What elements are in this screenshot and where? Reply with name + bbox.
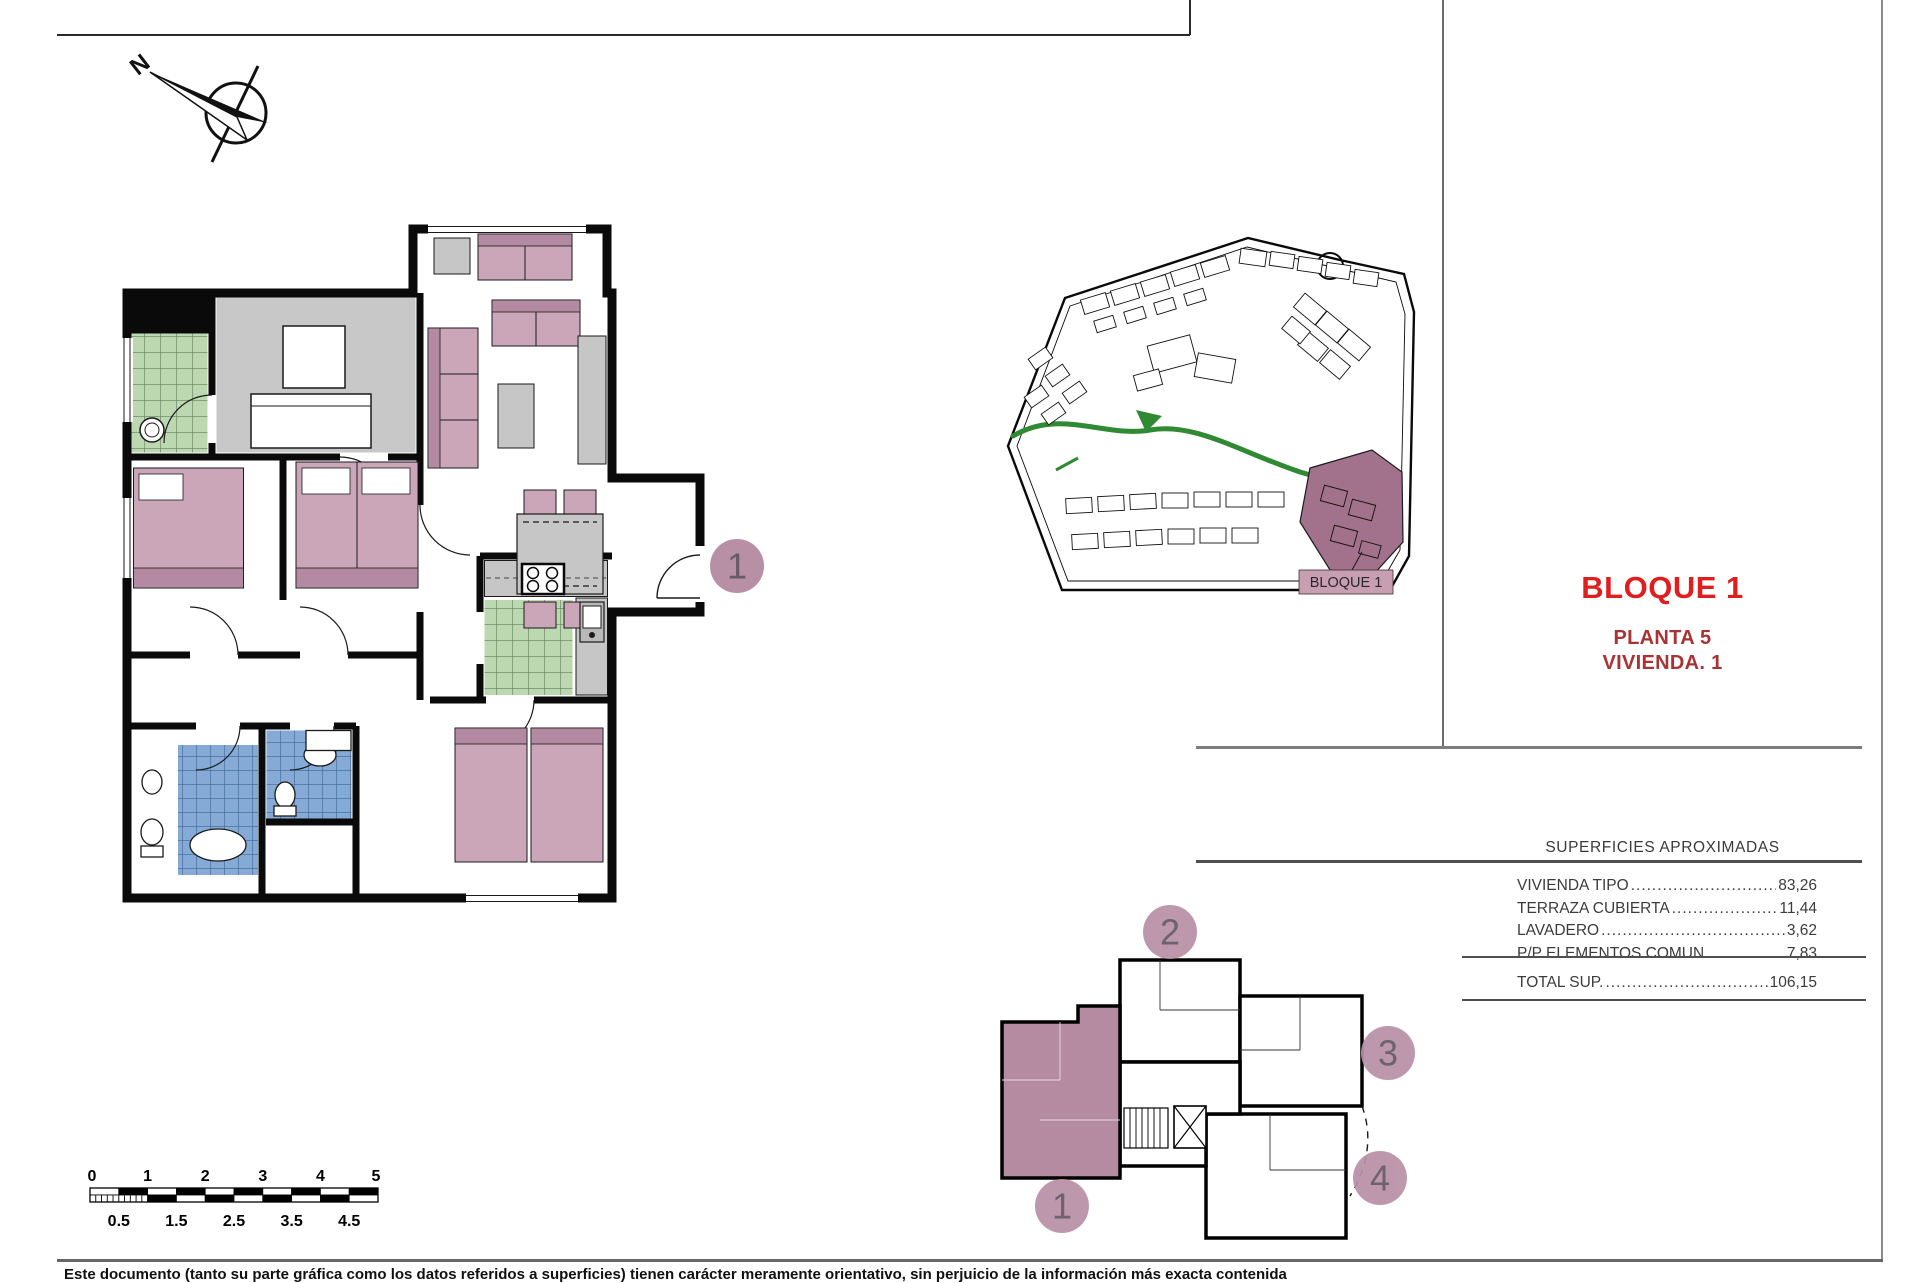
scale-tick-label: 4.5 xyxy=(338,1213,360,1230)
scale-tick-label: 1 xyxy=(143,1168,152,1185)
scale-tick-label: 1.5 xyxy=(165,1213,187,1230)
north-label: N xyxy=(125,49,155,81)
main-floor-plan: 1 xyxy=(121,223,764,904)
entry-door xyxy=(657,546,706,602)
north-arrow-icon: N xyxy=(125,49,268,162)
bedroom3-bed xyxy=(296,462,418,588)
terrace-side-table xyxy=(434,238,470,274)
key-badge-2: 2 xyxy=(1160,912,1180,953)
bedroom4-beds xyxy=(455,728,603,862)
key-badge-1: 1 xyxy=(1052,1186,1072,1227)
scale-bar: 0 1 2 3 4 5 0.5 1.5 2.5 3.5 4.5 xyxy=(88,1168,381,1230)
scale-tick-label: 2.5 xyxy=(223,1213,245,1230)
sideboard xyxy=(578,336,606,464)
living-sofa xyxy=(428,328,478,468)
bedroom1-bed xyxy=(251,394,371,448)
washer-icon xyxy=(140,418,164,442)
scale-tick-label: 4 xyxy=(316,1168,325,1185)
elevator-icon xyxy=(1174,1106,1206,1148)
scale-tick-label: 3 xyxy=(258,1168,267,1185)
key-apartment-3 xyxy=(1240,996,1362,1106)
key-badge-3: 3 xyxy=(1378,1033,1398,1074)
key-apartment-4 xyxy=(1206,1114,1346,1238)
key-apartment-1-highlight xyxy=(1002,1006,1120,1178)
unit-badge-label: 1 xyxy=(727,546,747,587)
scale-tick-label: 0.5 xyxy=(108,1213,130,1230)
scale-tick-label: 2 xyxy=(201,1168,210,1185)
living-loveseat xyxy=(492,300,580,346)
site-plan: BLOQUE 1 xyxy=(1008,238,1414,594)
key-plan: 1 2 3 4 xyxy=(1002,905,1415,1238)
scale-tick-label: 3.5 xyxy=(280,1213,302,1230)
scale-tick-label: 0 xyxy=(88,1168,97,1185)
site-label-text: BLOQUE 1 xyxy=(1310,575,1383,591)
stove-icon xyxy=(522,564,564,594)
terrace-wall-mass xyxy=(132,298,210,334)
stairs-icon xyxy=(1124,1108,1168,1148)
key-badge-4: 4 xyxy=(1370,1158,1390,1199)
terrace-sofa xyxy=(478,234,572,280)
bedroom2-bed xyxy=(134,468,244,588)
key-apartment-2 xyxy=(1120,960,1240,1062)
bedroom1-table xyxy=(283,326,345,388)
scale-tick-label: 5 xyxy=(372,1168,381,1185)
drawing-canvas: N xyxy=(0,0,1920,1280)
coffee-table xyxy=(498,384,534,448)
unit-badge: 1 xyxy=(710,539,764,593)
sink-icon xyxy=(580,602,604,642)
site-highlight-label: BLOQUE 1 xyxy=(1299,570,1393,594)
